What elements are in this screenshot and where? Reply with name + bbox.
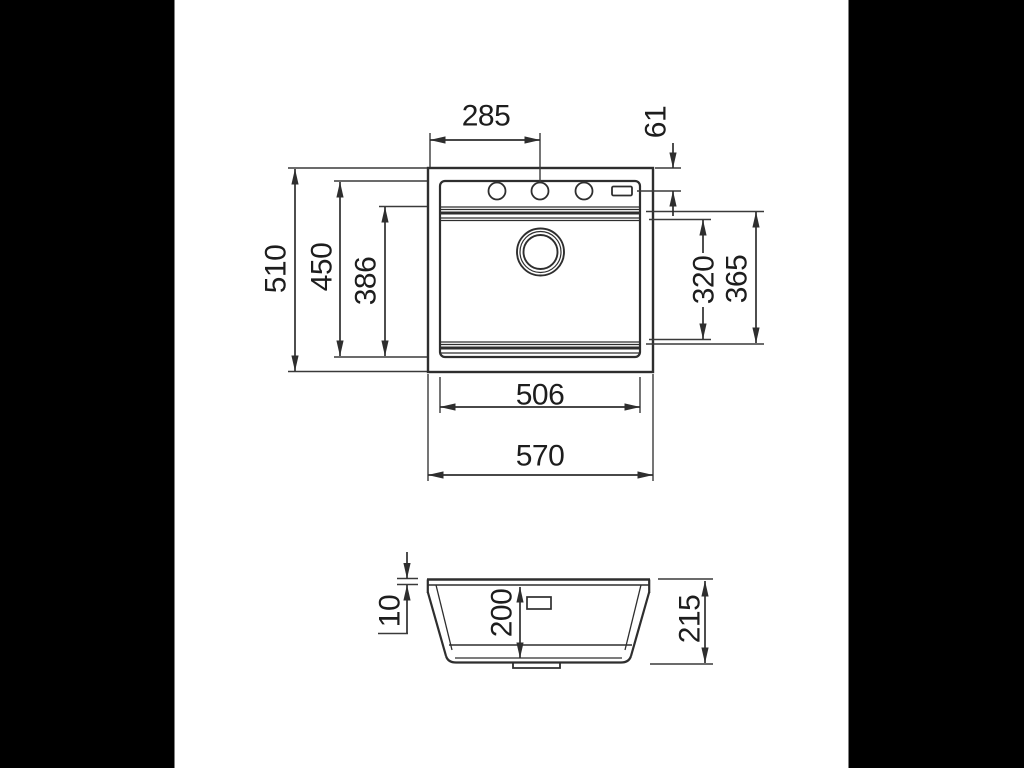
dim-label-510: 510 xyxy=(260,245,293,294)
dim-label-570: 570 xyxy=(516,440,565,473)
dim-label-506: 506 xyxy=(516,379,565,412)
screenshot-canvas: 285 61 510 450 386 320 365 506 570 xyxy=(0,0,1024,768)
dim-label-61: 61 xyxy=(640,106,673,138)
drawing-paper xyxy=(175,0,849,768)
dim-label-320: 320 xyxy=(688,256,721,305)
dim-label-365: 365 xyxy=(721,255,754,304)
dim-label-200: 200 xyxy=(486,589,519,638)
dim-label-10: 10 xyxy=(374,595,407,627)
dim-label-386: 386 xyxy=(350,257,383,306)
dim-label-285: 285 xyxy=(462,100,511,133)
technical-drawing: 285 61 510 450 386 320 365 506 570 xyxy=(0,0,1024,768)
bowl-top-edge-lines xyxy=(441,207,639,221)
dim-label-450: 450 xyxy=(306,243,339,292)
dim-label-215: 215 xyxy=(674,595,707,644)
